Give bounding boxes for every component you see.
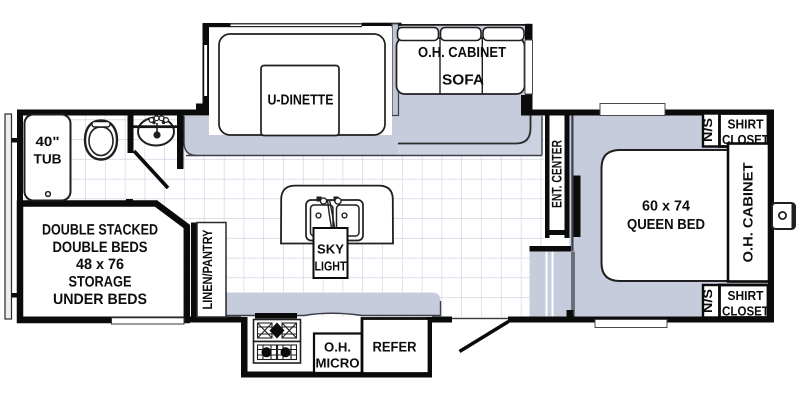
svg-text:CLOSET: CLOSET [722,304,769,319]
svg-text:SHIRT: SHIRT [728,116,764,131]
svg-text:60 x 74: 60 x 74 [642,199,690,215]
svg-text:O.H. CABINET: O.H. CABINET [418,45,506,61]
svg-text:SHIRT: SHIRT [728,288,764,303]
svg-text:STORAGE: STORAGE [69,274,132,291]
svg-text:DOUBLE STACKED: DOUBLE STACKED [42,222,158,239]
svg-text:SKY: SKY [317,242,344,257]
svg-text:U-DINETTE: U-DINETTE [268,93,334,109]
svg-text:MICRO: MICRO [316,356,360,371]
svg-text:SOFA: SOFA [442,73,485,89]
svg-text:ENT. CENTER: ENT. CENTER [549,140,565,208]
svg-text:40": 40" [36,134,60,149]
svg-text:UNDER BEDS: UNDER BEDS [53,291,147,308]
svg-text:QUEEN BED: QUEEN BED [627,217,705,233]
svg-text:O.H. CABINET: O.H. CABINET [741,162,756,263]
svg-text:O.H.: O.H. [324,340,351,355]
svg-text:DOUBLE BEDS: DOUBLE BEDS [53,239,148,256]
svg-text:N/S: N/S [701,118,715,142]
svg-text:LINEN/PANTRY: LINEN/PANTRY [200,230,215,310]
svg-text:REFER: REFER [373,339,417,355]
svg-text:N/S: N/S [701,289,715,313]
svg-text:TUB: TUB [34,152,62,167]
svg-text:LIGHT: LIGHT [315,259,347,274]
svg-text:48 x 76: 48 x 76 [76,256,124,273]
